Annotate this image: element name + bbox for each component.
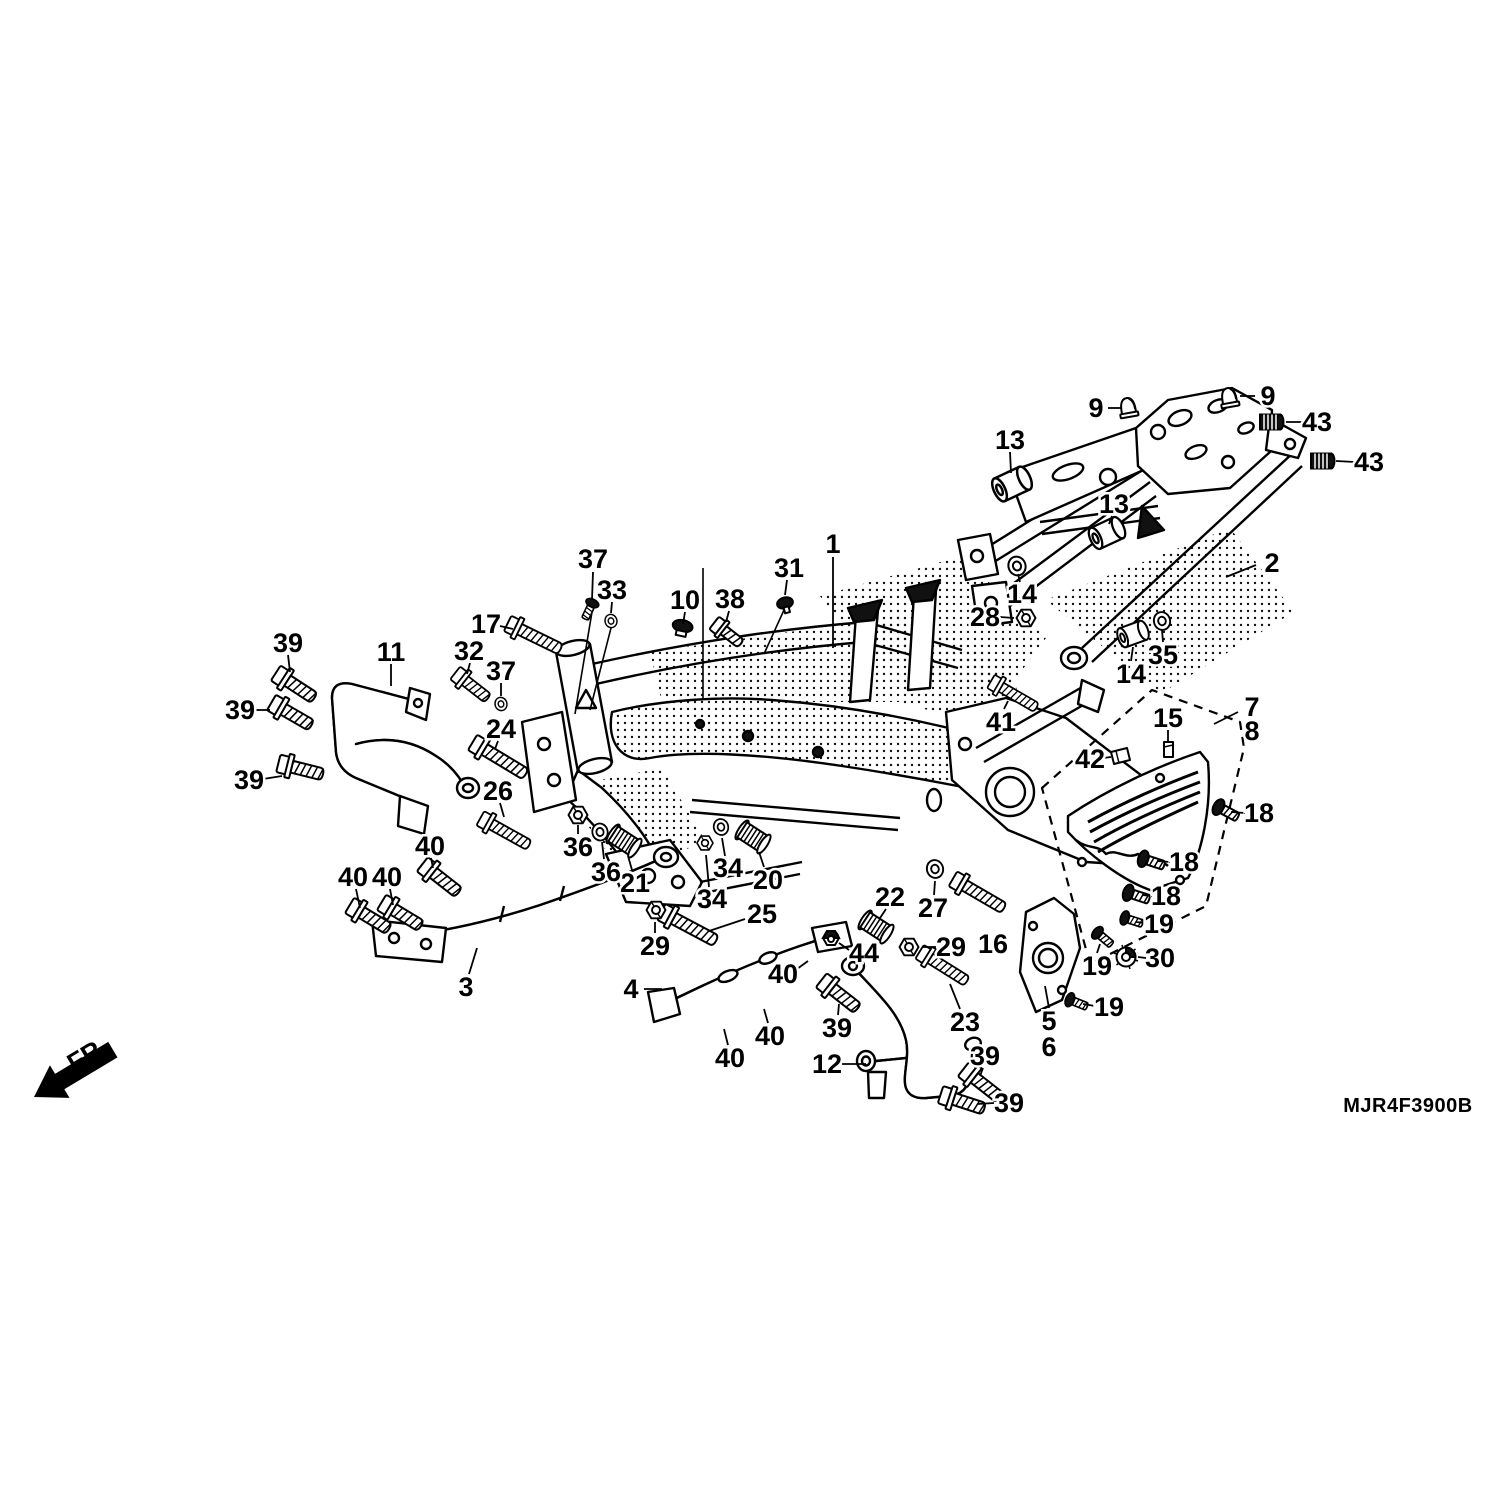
part-boltL-icon [947,869,1009,918]
part-nut-icon [569,807,588,824]
part-callout-35: 35 [1148,640,1178,670]
part-washer-icon [712,817,730,836]
part-tab-icon [1164,742,1173,757]
part-callout-24: 24 [486,714,516,744]
leader-line [709,919,745,931]
part-screw-icon [1089,925,1116,951]
part-callout-2: 2 [1264,548,1279,578]
part-nut-icon [647,902,666,919]
lower-bracket-center-art [648,922,852,1022]
part-callout-40: 40 [715,1043,745,1073]
part-callout-36: 36 [563,832,593,862]
part-callout-40: 40 [372,862,402,892]
leader-line [950,984,960,1009]
part-callout-9: 9 [1088,393,1103,423]
leader-line [1231,812,1245,813]
part-callout-13: 13 [1099,489,1129,519]
part-callout-11: 11 [377,637,406,667]
part-callout-3: 3 [458,972,473,1002]
leader-line [592,572,593,600]
part-callout-41: 41 [986,707,1016,737]
leader-line [1010,452,1011,473]
part-callout-14: 14 [1116,659,1146,689]
part-ribbed-icon [733,819,773,855]
leader-line [1000,617,1014,618]
part-callout-43: 43 [1302,407,1332,437]
part-callout-43: 43 [1354,447,1384,477]
part-callout-1: 1 [825,529,840,559]
part-callout-39: 39 [822,1013,852,1043]
part-washer-icon [925,858,945,880]
part-code-label: MJR4F3900B [1343,1095,1473,1117]
part-callout-19: 19 [1144,909,1174,939]
part-boltM-icon [275,752,325,786]
part-callout-20: 20 [753,865,783,895]
part-flower-icon [1114,945,1138,969]
part-washer-icon [604,613,619,629]
part-callout-6: 6 [1041,1032,1056,1062]
leader-line [706,855,709,887]
leader-line [978,1103,994,1104]
part-callout-40: 40 [338,862,368,892]
part-plug-icon [1260,415,1284,430]
part-callout-18: 18 [1151,881,1181,911]
part-callout-8: 8 [1244,716,1259,746]
part-callout-40: 40 [768,959,798,989]
part-callout-22: 22 [875,882,905,912]
part-callout-19: 19 [1082,951,1112,981]
part-grommet-icon [776,596,795,615]
part-callout-23: 23 [950,1007,980,1037]
part-boltM-icon [415,855,466,902]
part-callout-36: 36 [591,857,621,887]
part-callout-12: 12 [812,1049,842,1079]
part-callout-33: 33 [597,575,627,605]
part-callout-39: 39 [970,1041,1000,1071]
parts-diagram: 1234567899101112131314141516171818181919… [0,0,1500,1500]
leader-line [1336,461,1355,462]
part-callout-29: 29 [640,931,670,961]
part-callout-39: 39 [225,695,255,725]
part-cap-icon [671,618,694,638]
front-guard-pipe-art [332,683,479,834]
leader-line [1214,712,1238,724]
part-clip-icon [1111,748,1130,764]
part-callout-4: 4 [623,974,638,1004]
part-callout-13: 13 [995,425,1025,455]
part-boltM-icon [814,971,865,1018]
part-nut-icon [697,836,713,850]
part-callout-17: 17 [471,609,501,639]
part-boltL-icon [503,613,566,659]
part-callout-18: 18 [1244,798,1274,828]
part-callout-9: 9 [1260,381,1275,411]
part-callout-28: 28 [970,602,1000,632]
part-callout-25: 25 [747,899,777,929]
part-callout-31: 31 [774,553,804,583]
leader-line [263,776,282,779]
part-screw-icon [1063,991,1090,1013]
part-callout-26: 26 [483,776,513,806]
part-callout-15: 15 [1153,703,1183,733]
part-nut-icon [900,939,919,956]
part-callout-44: 44 [849,938,879,968]
part-callout-34: 34 [697,884,727,914]
part-callout-21: 21 [620,868,650,898]
parts-diagram-page: 1234567899101112131314141516171818181919… [0,0,1500,1500]
part-callout-30: 30 [1145,943,1175,973]
part-callout-39: 39 [234,765,264,795]
part-callout-40: 40 [415,831,445,861]
part-washer-icon [494,696,509,712]
part-callout-14: 14 [1007,579,1037,609]
part-callout-27: 27 [918,893,948,923]
leader-line [469,948,477,974]
part-callout-37: 37 [486,656,516,686]
part-plug-icon [1311,454,1335,469]
part-nutS-icon [823,931,839,945]
part-callout-32: 32 [454,636,484,666]
part-callout-19: 19 [1094,992,1124,1022]
part-callout-39: 39 [994,1088,1024,1118]
part-callout-37: 37 [578,544,608,574]
part-callout-38: 38 [715,584,745,614]
part-callout-18: 18 [1169,847,1199,877]
part-callout-29: 29 [936,932,966,962]
part-boltL-icon [475,809,534,855]
part-screw-icon [1118,910,1144,931]
part-callout-39: 39 [273,628,303,658]
part-callout-16: 16 [978,929,1008,959]
part-callout-10: 10 [670,585,700,615]
part-nut-icon [1017,610,1036,627]
leader-line [797,961,808,969]
part-callout-34: 34 [713,853,743,883]
part-callout-42: 42 [1075,744,1105,774]
part-callout-40: 40 [755,1021,785,1051]
